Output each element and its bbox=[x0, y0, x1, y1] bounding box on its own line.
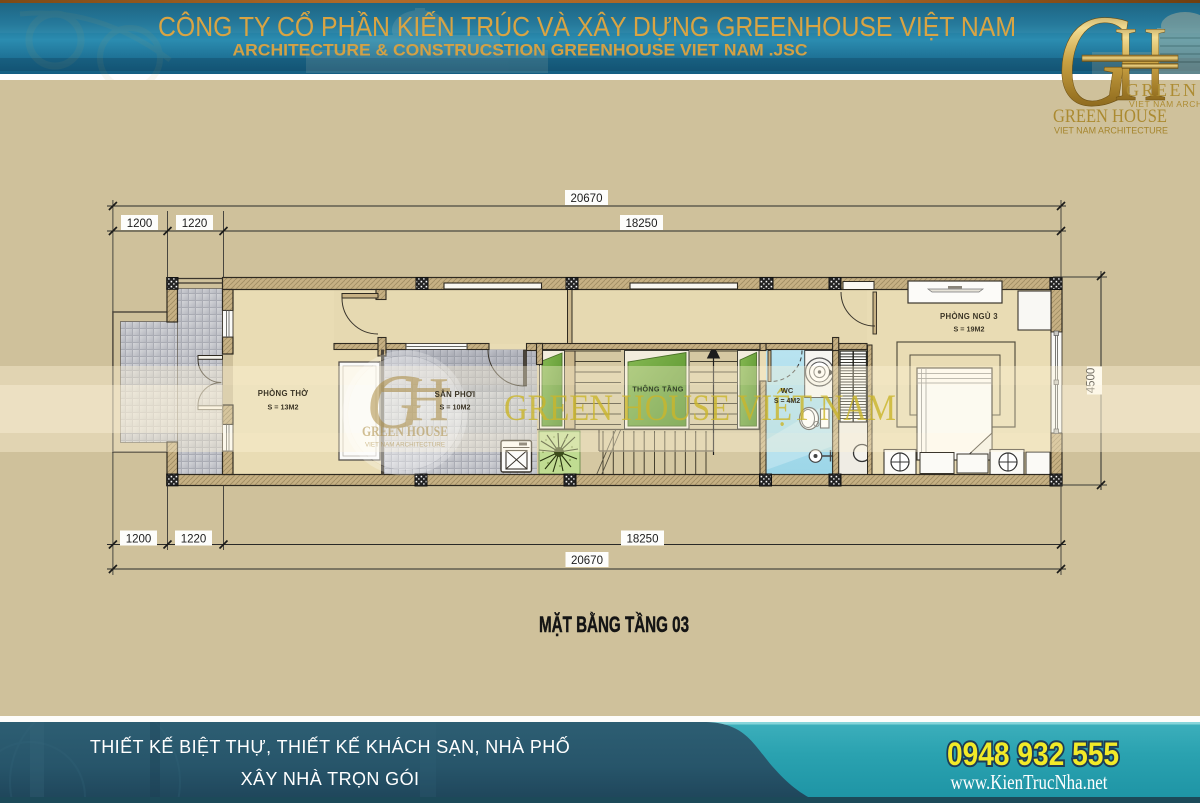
svg-text:0948 932 555: 0948 932 555 bbox=[947, 736, 1119, 772]
svg-text:S = 19M2: S = 19M2 bbox=[954, 325, 985, 334]
svg-text:ARCHITECTURE & CONSTRUCSTION G: ARCHITECTURE & CONSTRUCSTION GREENHOUSE … bbox=[233, 41, 808, 60]
svg-text:VIET NAM ARCHITECTURE: VIET NAM ARCHITECTURE bbox=[365, 442, 445, 449]
svg-text:S = 13M2: S = 13M2 bbox=[268, 403, 299, 412]
svg-text:1200: 1200 bbox=[126, 534, 152, 546]
svg-text:THÔNG TẦNG: THÔNG TẦNG bbox=[632, 384, 683, 394]
svg-text:SÂN PHƠI: SÂN PHƠI bbox=[435, 390, 476, 399]
svg-text:www.KienTrucNha.net: www.KienTrucNha.net bbox=[951, 770, 1108, 794]
svg-text:PHÒNG THỜ: PHÒNG THỜ bbox=[258, 389, 309, 398]
svg-text:18250: 18250 bbox=[627, 534, 659, 546]
svg-text:MẶT BẰNG TẦNG 03: MẶT BẰNG TẦNG 03 bbox=[539, 612, 689, 637]
svg-text:VIET NAM ARCHITECTURE: VIET NAM ARCHITECTURE bbox=[1054, 126, 1168, 136]
svg-text:18250: 18250 bbox=[626, 218, 658, 230]
svg-text:GREEN HOUS: GREEN HOUS bbox=[1126, 80, 1200, 100]
svg-text:PHÒNG NGỦ 3: PHÒNG NGỦ 3 bbox=[940, 312, 998, 321]
svg-text:GREEN HOUSE: GREEN HOUSE bbox=[1053, 106, 1167, 127]
svg-text:WC: WC bbox=[781, 386, 794, 395]
svg-text:S = 4M2: S = 4M2 bbox=[774, 398, 800, 405]
svg-text:1220: 1220 bbox=[182, 218, 208, 230]
svg-text:S = 10M2: S = 10M2 bbox=[440, 403, 471, 412]
svg-text:GREEN HOUSE: GREEN HOUSE bbox=[362, 424, 448, 440]
svg-text:1200: 1200 bbox=[127, 218, 153, 230]
svg-text:CÔNG TY CỔ PHẦN KIẾN TRÚC VÀ X: CÔNG TY CỔ PHẦN KIẾN TRÚC VÀ XÂY DỰNG GR… bbox=[158, 11, 1016, 42]
svg-text:20670: 20670 bbox=[571, 555, 603, 567]
svg-text:GREEN HOUSE VIỆT NAM: GREEN HOUSE VIỆT NAM bbox=[504, 387, 896, 429]
svg-text:20670: 20670 bbox=[571, 193, 603, 205]
svg-text:1220: 1220 bbox=[181, 534, 207, 546]
